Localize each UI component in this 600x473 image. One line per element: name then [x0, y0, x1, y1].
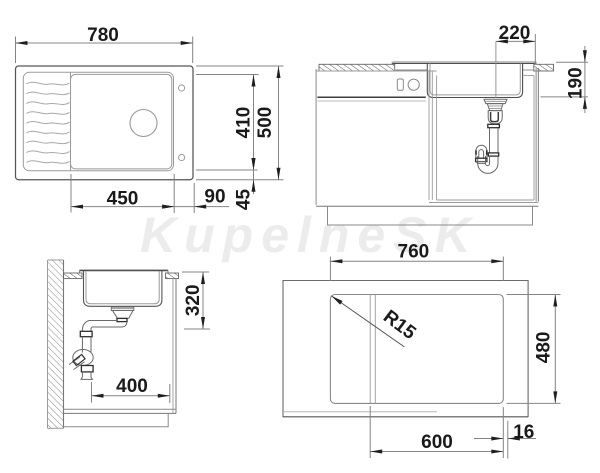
svg-text:410: 410 [233, 107, 254, 139]
svg-text:780: 780 [87, 25, 119, 46]
svg-text:220: 220 [499, 23, 531, 44]
svg-text:450: 450 [107, 189, 139, 210]
svg-text:600: 600 [421, 432, 453, 453]
svg-text:190: 190 [565, 67, 586, 99]
svg-text:90: 90 [204, 186, 225, 207]
svg-text:45: 45 [233, 189, 254, 211]
svg-text:16: 16 [513, 422, 534, 443]
svg-text:400: 400 [116, 376, 148, 397]
svg-text:320: 320 [183, 284, 204, 316]
svg-text:480: 480 [533, 332, 554, 364]
svg-text:500: 500 [255, 107, 276, 139]
svg-text:760: 760 [398, 242, 430, 263]
